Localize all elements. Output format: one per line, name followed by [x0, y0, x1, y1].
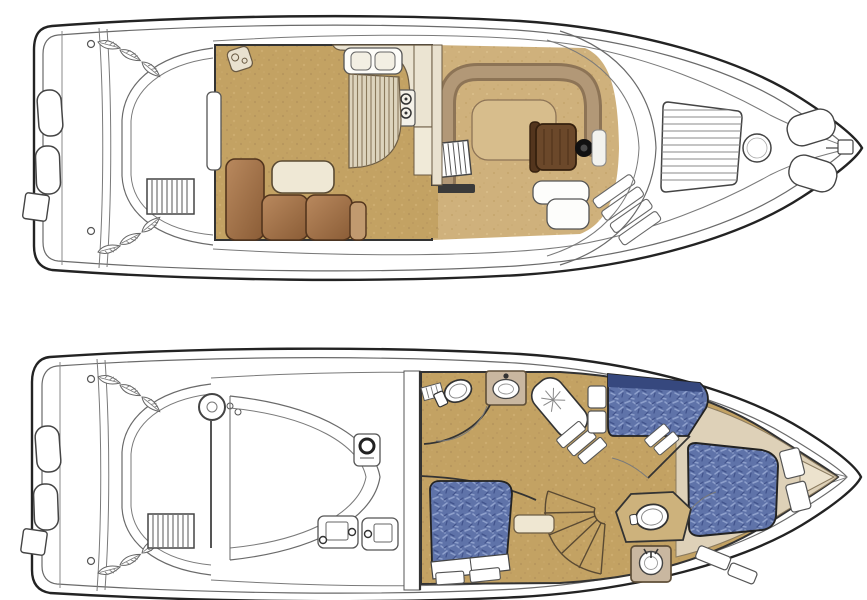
salon-door	[207, 92, 221, 170]
lower-deck-plan	[20, 349, 861, 600]
scanned-floorplan-page	[0, 0, 867, 600]
sink-basin	[351, 52, 371, 70]
battery-boxes	[318, 516, 398, 550]
hatch-hinge	[88, 228, 95, 235]
boarding-notch	[22, 192, 49, 221]
helm-console	[547, 199, 589, 229]
cockpit-ladder	[147, 179, 194, 214]
cockpit-ladder	[148, 514, 194, 548]
helm-pod	[592, 130, 606, 166]
yacht-deck-plans	[0, 0, 867, 600]
hatch-hinge	[88, 558, 95, 565]
transom-cushion	[33, 484, 59, 531]
salon-bulkhead	[432, 45, 442, 185]
accommodations	[404, 371, 838, 590]
hatch-hinge	[88, 376, 95, 383]
mid-cabin-cabinet	[588, 386, 606, 408]
forward-berth	[688, 443, 778, 536]
aft-head-vanity	[486, 371, 526, 405]
helm-chair	[530, 122, 576, 172]
companionway	[404, 371, 420, 590]
transom-cushion	[36, 89, 63, 137]
salon	[207, 45, 442, 240]
galley-cabinet	[414, 127, 432, 175]
equipment-box	[354, 434, 380, 466]
foredeck-sunpad	[660, 102, 743, 192]
landing-step	[514, 515, 554, 533]
transom-cushion	[34, 425, 61, 473]
aft-cabin-berth	[430, 481, 512, 564]
nightstand	[469, 567, 500, 582]
boarding-notch	[20, 528, 47, 555]
mid-cabin-cabinet	[588, 411, 606, 433]
hatch-hinge	[88, 41, 95, 48]
transom-cushion	[35, 146, 61, 195]
upper-deck-plan	[22, 16, 862, 280]
forward-head-sink	[631, 546, 671, 582]
nightstand	[436, 571, 465, 585]
sofa-arm	[350, 202, 366, 240]
sink-basin	[375, 52, 395, 70]
coffee-table	[272, 161, 334, 193]
